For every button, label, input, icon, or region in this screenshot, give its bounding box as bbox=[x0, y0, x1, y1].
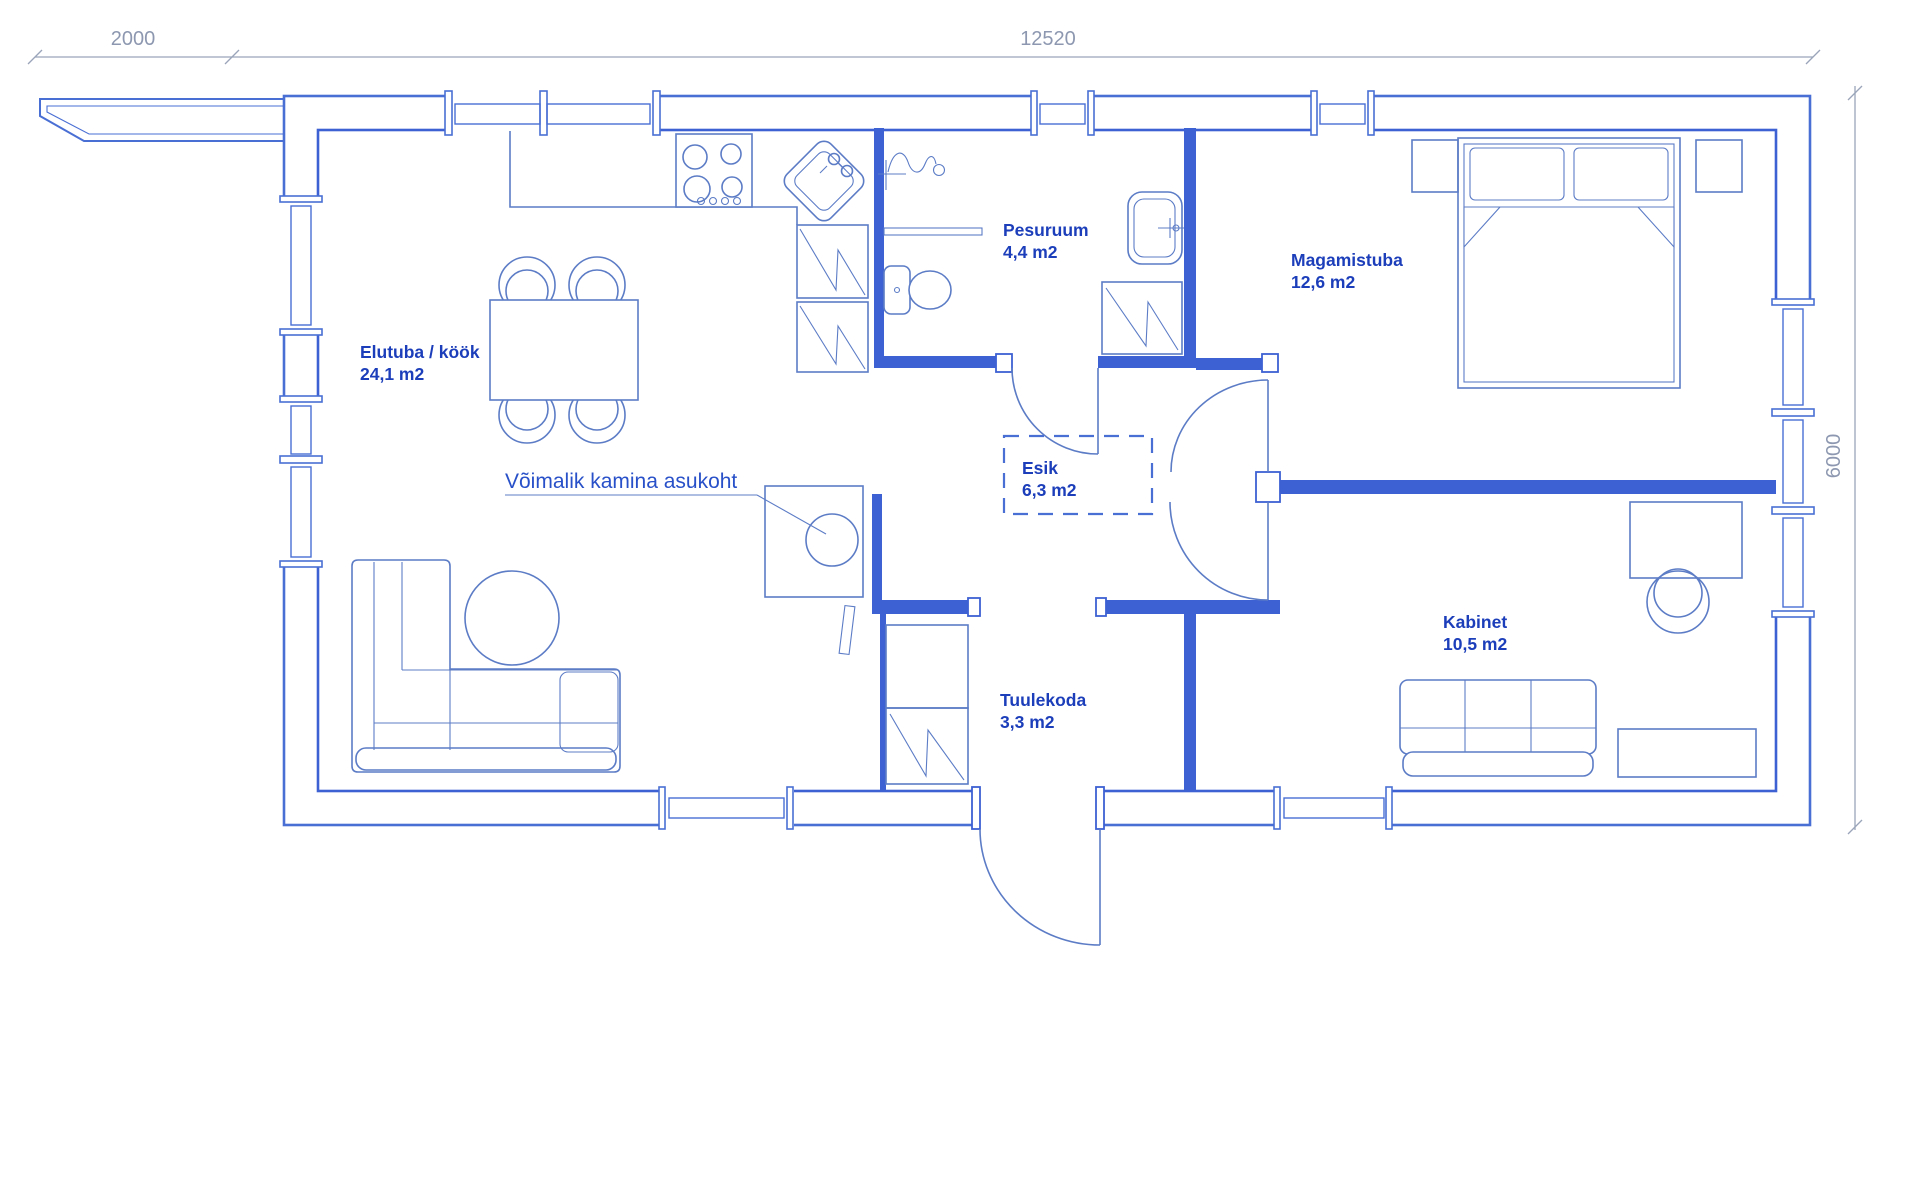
door-jamb bbox=[996, 354, 1012, 372]
wall-bedroom-kabinet-divider bbox=[1280, 480, 1776, 494]
room-name: Kabinet bbox=[1443, 612, 1507, 632]
wall-pesuruum-south-right bbox=[1098, 356, 1196, 368]
door-jamb bbox=[972, 787, 980, 829]
door-jamb bbox=[968, 598, 980, 616]
entrance-canopy bbox=[40, 99, 284, 141]
floor-plan-drawing: 2000 12520 6000 bbox=[0, 0, 1920, 1183]
window-pesuruum bbox=[1031, 91, 1094, 135]
room-name: Esik bbox=[1022, 458, 1058, 478]
wall-tuulekoda-east bbox=[1184, 600, 1196, 791]
door-swing-arc bbox=[980, 829, 1100, 945]
room-name: Elutuba / köök bbox=[360, 342, 480, 362]
entrance-door bbox=[972, 785, 1104, 945]
wall-pesuruum-west bbox=[874, 128, 884, 368]
washing-machine bbox=[1102, 282, 1182, 354]
window-bedroom bbox=[1311, 91, 1374, 135]
door-jamb bbox=[1262, 354, 1278, 372]
door-jamb bbox=[1096, 598, 1106, 616]
dimension-top: 2000 12520 bbox=[28, 28, 1820, 64]
room-area: 12,6 m2 bbox=[1291, 272, 1355, 292]
canopy-inner-line bbox=[47, 106, 284, 134]
dining-table bbox=[490, 300, 638, 400]
door-jamb bbox=[1096, 787, 1104, 829]
stove bbox=[676, 134, 752, 207]
washbasin bbox=[1128, 192, 1184, 264]
window-living-bottom bbox=[659, 787, 794, 829]
window-kitchen bbox=[445, 91, 660, 135]
wall-tuulekoda-north bbox=[872, 600, 980, 614]
kitchen-tall-unit bbox=[797, 225, 868, 298]
room-name: Magamistuba bbox=[1291, 250, 1403, 270]
window-living-left-upper bbox=[280, 196, 322, 335]
toilet-tank bbox=[884, 266, 910, 314]
room-area: 24,1 m2 bbox=[360, 364, 424, 384]
room-area: 6,3 m2 bbox=[1022, 480, 1077, 500]
wall-bedroom-west bbox=[1184, 128, 1196, 368]
room-name: Pesuruum bbox=[1003, 220, 1089, 240]
dimension-canopy-width: 2000 bbox=[111, 28, 156, 50]
room-area: 3,3 m2 bbox=[1000, 712, 1055, 732]
fireplace-annotation: Võimalik kamina asukoht bbox=[505, 470, 737, 493]
toilet-bowl bbox=[909, 271, 951, 309]
room-area: 4,4 m2 bbox=[1003, 242, 1058, 262]
dimension-total-width: 12520 bbox=[1020, 28, 1076, 50]
canopy-outline bbox=[40, 99, 284, 141]
room-area: 10,5 m2 bbox=[1443, 634, 1507, 654]
dimension-right: 6000 bbox=[1823, 86, 1862, 834]
window-kabinet-bottom bbox=[1274, 787, 1392, 829]
floor-plan-sheet: 2000 12520 6000 bbox=[0, 0, 1920, 1183]
wall-bedroom-south-stub bbox=[1196, 358, 1272, 370]
kitchen-tall-unit bbox=[797, 302, 868, 372]
wall-tuulekoda-west bbox=[880, 614, 886, 791]
wall-pesuruum-south-left bbox=[874, 356, 1012, 368]
wall-fireplace-back bbox=[872, 494, 882, 600]
sofa-front-edge bbox=[1403, 752, 1593, 776]
dimension-total-height: 6000 bbox=[1823, 434, 1845, 479]
window-right-wall bbox=[1772, 299, 1814, 617]
room-name: Tuulekoda bbox=[1000, 690, 1086, 710]
door-post bbox=[1256, 472, 1280, 502]
window-living-left-lower bbox=[280, 396, 322, 567]
